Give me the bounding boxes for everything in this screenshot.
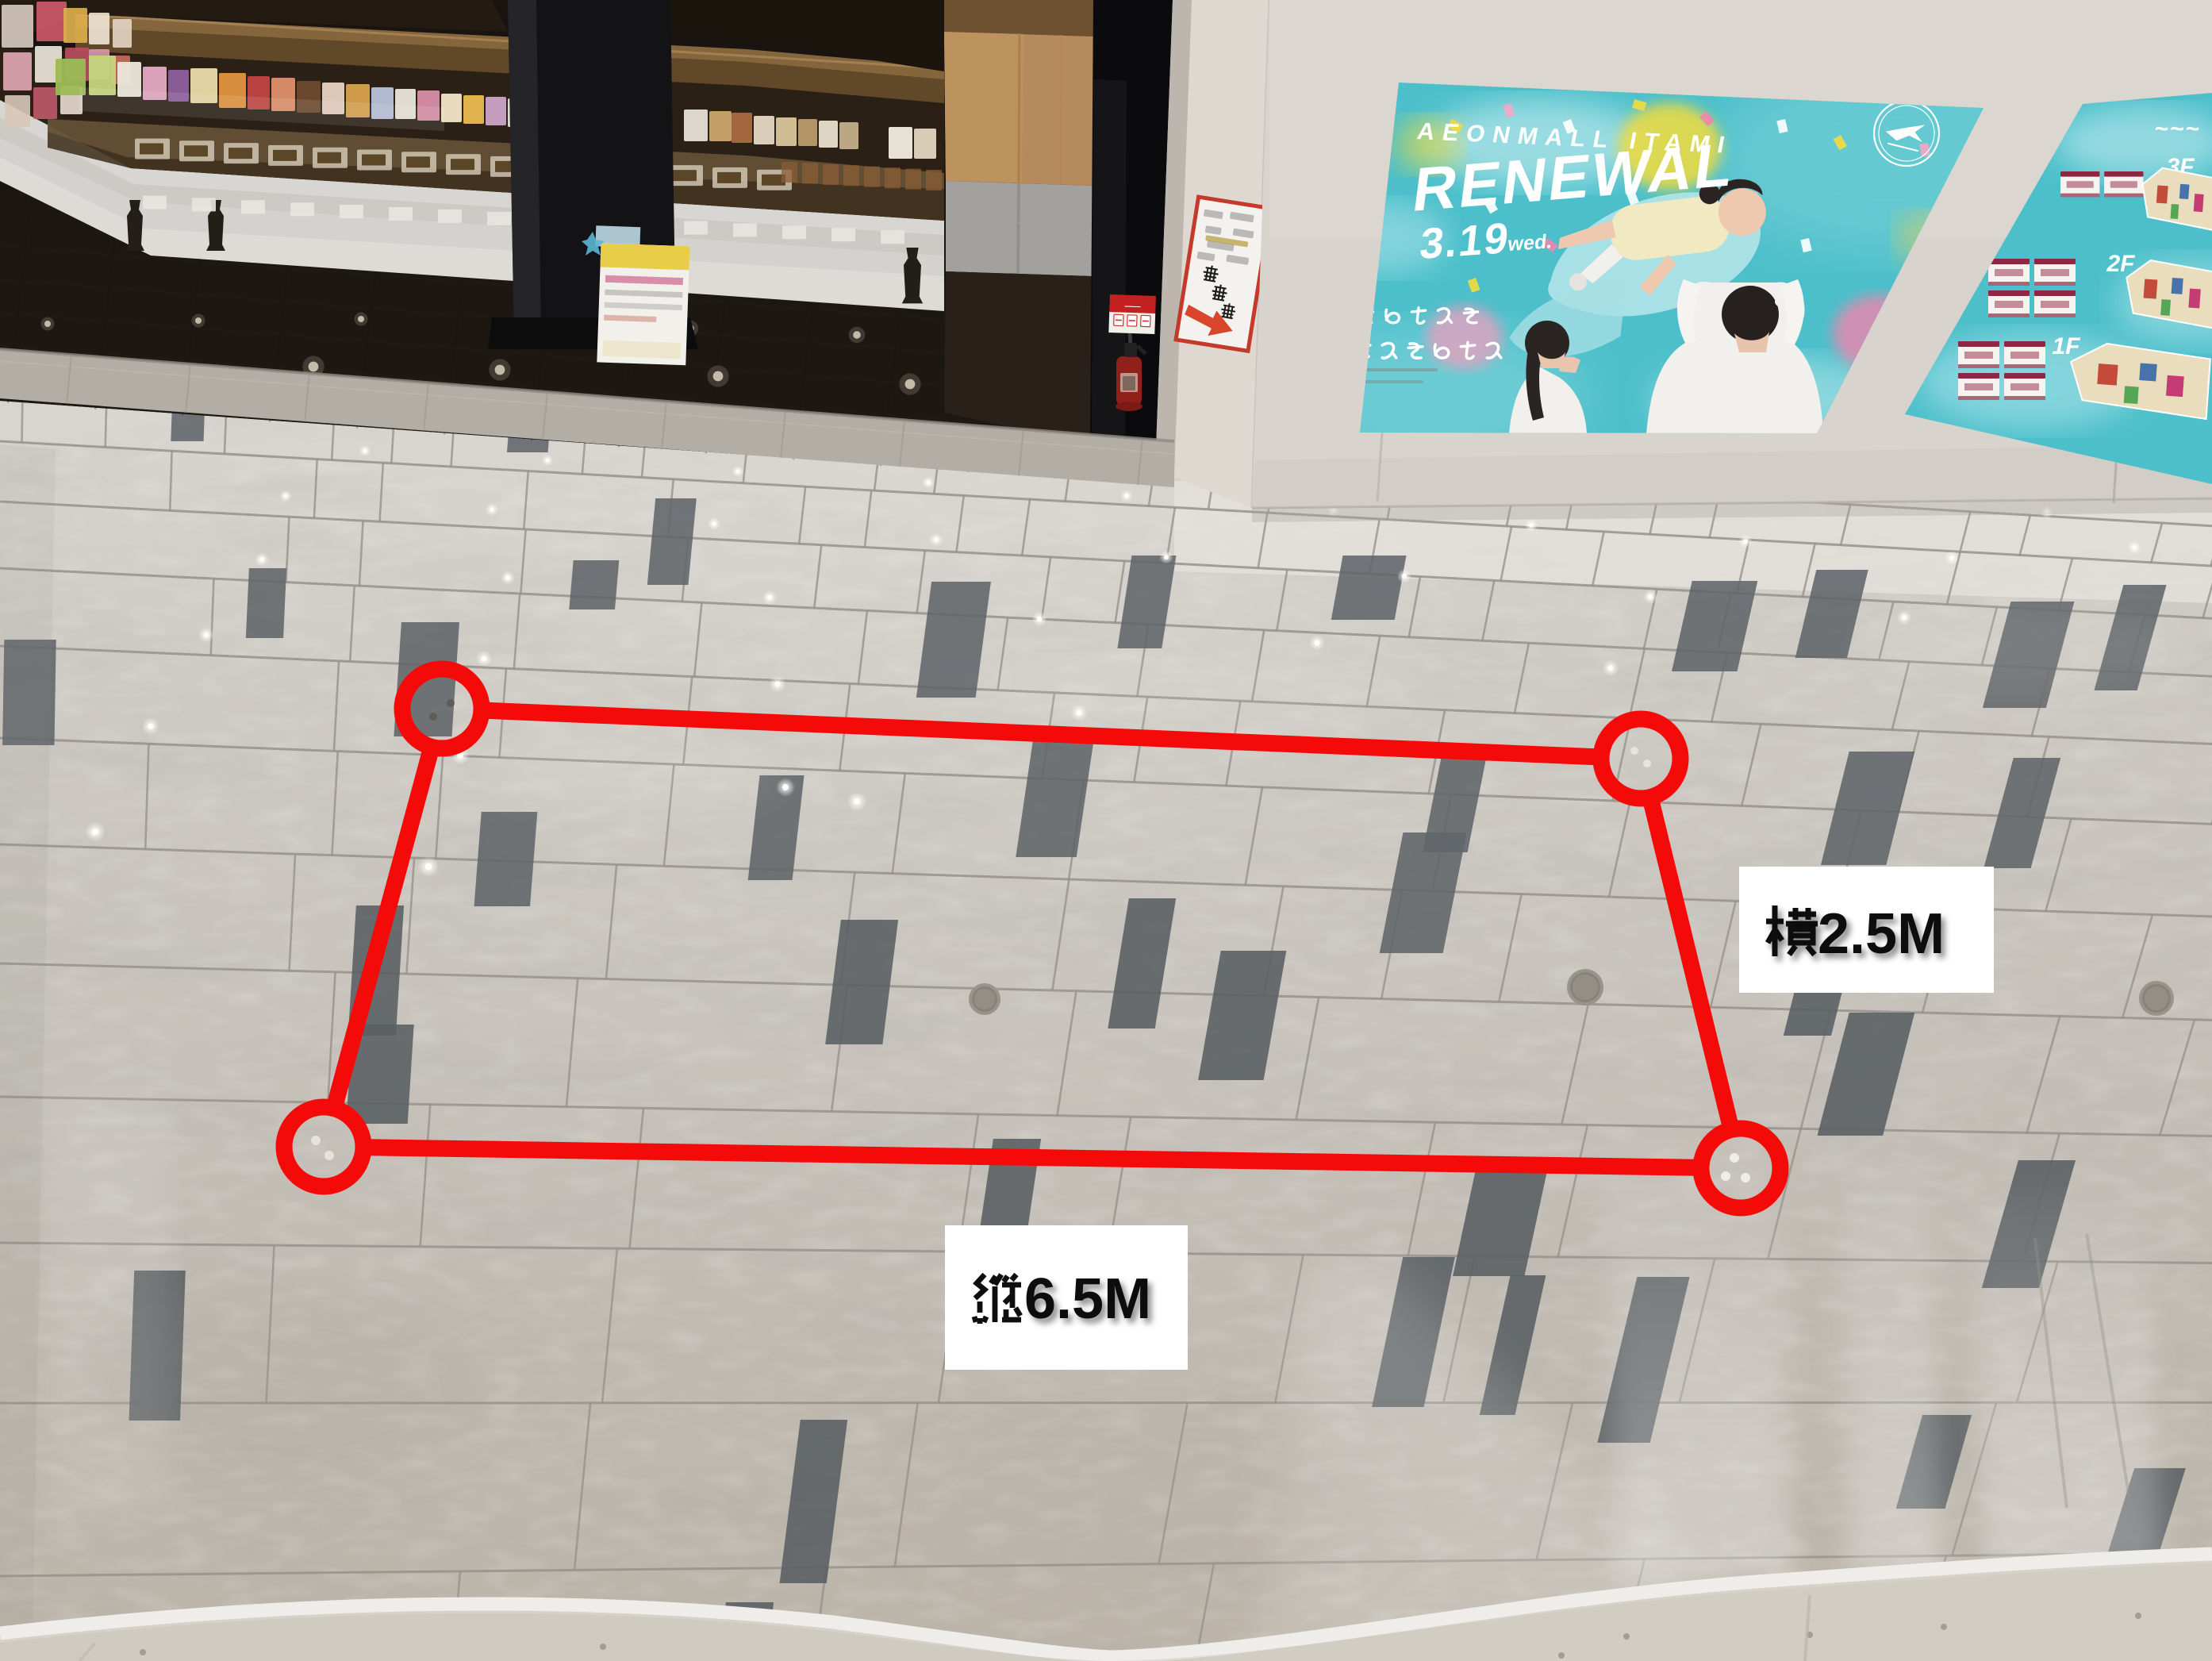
svg-text:wed.: wed. [1506,230,1553,256]
svg-text:3.19: 3.19 [1418,213,1512,268]
svg-text:6.5M: 6.5M [1024,1267,1151,1331]
svg-text:2F: 2F [2106,251,2135,277]
svg-text:——: —— [1124,302,1140,312]
svg-text:~~~: ~~~ [2155,116,2202,142]
svg-text:2.5M: 2.5M [1818,902,1945,966]
svg-text:1F: 1F [2052,333,2080,359]
